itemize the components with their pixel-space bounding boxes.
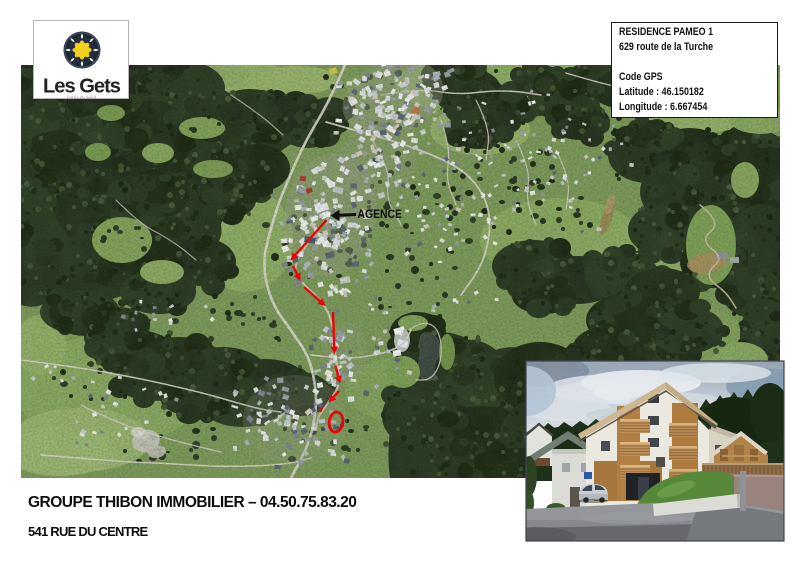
- svg-text:AGENCE: AGENCE: [358, 207, 403, 221]
- svg-text:Portes du Soleil: Portes du Soleil: [66, 95, 97, 100]
